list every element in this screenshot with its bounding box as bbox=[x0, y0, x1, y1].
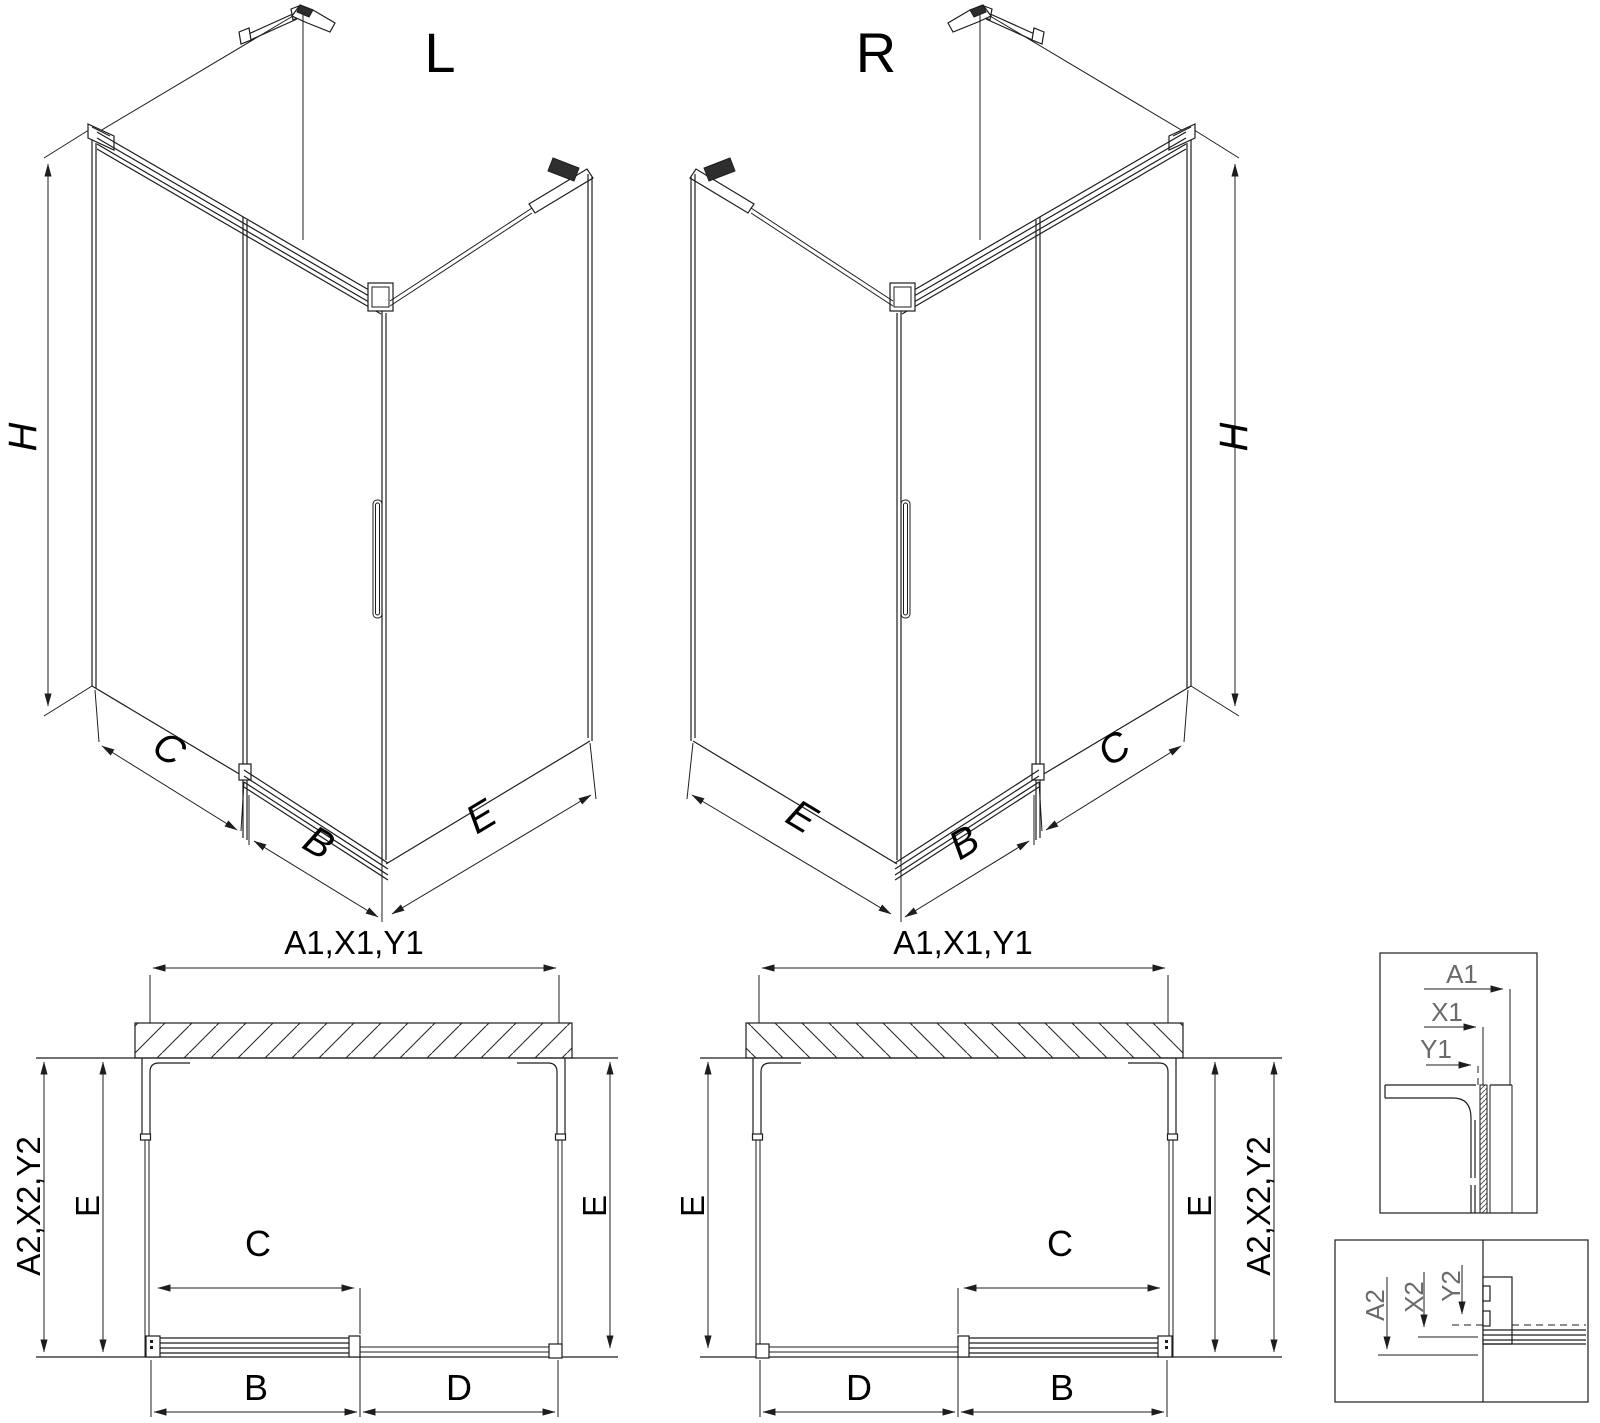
dim-label-depth-inner: E bbox=[1181, 1195, 1218, 1217]
dim-label-height: H bbox=[1212, 422, 1256, 451]
dim-label-a1: A1 bbox=[1446, 959, 1478, 989]
dim-label-total-depth: A2,X2,Y2 bbox=[1240, 1136, 1277, 1275]
technical-drawing-page: L H C B E R H C B E A1,X1,Y1 A2,X2,Y2 E … bbox=[0, 0, 1600, 1423]
plan-view-right: A1,X1,Y1 E E A2,X2,Y2 C D B bbox=[674, 924, 1282, 1417]
dim-label-x1: X1 bbox=[1431, 997, 1463, 1027]
variant-label-left: L bbox=[424, 21, 455, 84]
dim-label-door: B bbox=[244, 1367, 268, 1408]
dim-label-depth-left: E bbox=[674, 1195, 711, 1217]
iso-view-right: R H C B E bbox=[687, 5, 1256, 922]
dim-label-opening: C bbox=[1047, 1223, 1073, 1264]
dim-label-depth-inner: E bbox=[69, 1195, 106, 1217]
dim-label-back-width: C bbox=[145, 723, 194, 776]
dim-label-total-width: A1,X1,Y1 bbox=[284, 924, 423, 961]
detail-bottom-rail: A2 X2 Y2 bbox=[1335, 1240, 1588, 1402]
dim-label-total-width: A1,X1,Y1 bbox=[893, 924, 1032, 961]
detail-top-profile: A1 X1 Y1 bbox=[1380, 953, 1537, 1213]
dim-label-fixed: D bbox=[846, 1367, 872, 1408]
dim-label-back-width: C bbox=[1090, 722, 1139, 775]
dim-label-fixed: D bbox=[446, 1367, 472, 1408]
dim-label-a2: A2 bbox=[1360, 1289, 1390, 1321]
dim-label-door: B bbox=[1050, 1367, 1074, 1408]
dim-label-side-width: E bbox=[459, 790, 506, 842]
plan-view-left: A1,X1,Y1 A2,X2,Y2 E E C B D bbox=[10, 924, 618, 1417]
iso-view-left: L H C B E bbox=[1, 5, 596, 922]
dim-label-opening: C bbox=[245, 1223, 271, 1264]
dim-label-depth-right: E bbox=[576, 1195, 613, 1217]
dim-label-y1: Y1 bbox=[1420, 1034, 1452, 1064]
variant-label-right: R bbox=[856, 21, 896, 84]
dim-label-height: H bbox=[1, 422, 45, 451]
dim-label-total-depth: A2,X2,Y2 bbox=[10, 1136, 47, 1275]
shower-enclosure-drawing: L H C B E R H C B E A1,X1,Y1 A2,X2,Y2 E … bbox=[0, 0, 1600, 1423]
